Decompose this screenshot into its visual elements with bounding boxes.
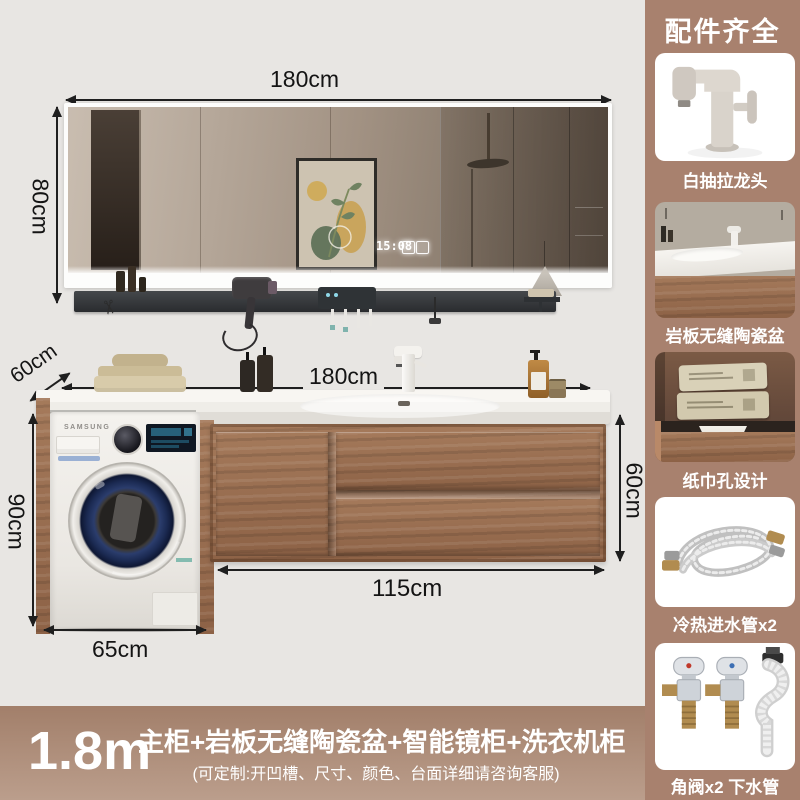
clock-humidity-badge [416, 241, 429, 254]
toothbrush [357, 309, 360, 328]
footer-bar: 1.8m 主柜+岩板无缝陶瓷盆+智能镜柜+洗衣机柜 (可定制:开凹槽、尺寸、颜色… [0, 706, 645, 800]
accessory-card-hoses [655, 497, 795, 607]
display-digits [151, 428, 181, 436]
folded-towel [94, 376, 186, 392]
amenity-bottle [240, 360, 255, 392]
dim-arrow-mirror-height [56, 107, 58, 303]
dim-arrow-cabinet-width [218, 569, 604, 571]
mirror-led-glow [68, 266, 608, 273]
display-icon [184, 428, 192, 436]
clock-temp-badge [402, 241, 415, 254]
razor-handle [434, 297, 436, 319]
accessory-card-tissue [655, 352, 795, 462]
glass-seam [569, 107, 570, 273]
toothbrush [344, 309, 347, 329]
shower-pipe [487, 113, 490, 161]
toothbrush-tip [343, 327, 348, 332]
toothbrush [369, 309, 372, 326]
cabinet-shade [655, 352, 665, 422]
program-knob [112, 424, 143, 455]
pack-mark [743, 369, 755, 381]
dim-arrow-washer-height [32, 414, 34, 626]
dim-label-mirror-height: 80cm [27, 179, 54, 235]
cabinet-drawer-top [336, 432, 600, 490]
shelf-line [575, 235, 603, 236]
dim-label-washer-height: 90cm [3, 494, 30, 550]
service-hatch [152, 592, 198, 626]
faucet-handle [414, 360, 428, 369]
footer-subtitle: (可定制:开凹槽、尺寸、颜色、台面详细请咨询客服) [138, 760, 614, 784]
mini-bottle [139, 277, 146, 292]
dim-arrow-mirror-width [66, 99, 611, 101]
hoses-image [655, 497, 795, 607]
detergent-drawer [56, 436, 100, 454]
wall-hook [665, 208, 667, 219]
shelf-line [575, 207, 603, 208]
dim-arrow-washer-width [44, 629, 206, 631]
footer-title: 主柜+岩板无缝陶瓷盆+智能镜柜+洗衣机柜 [138, 722, 614, 759]
display-row [151, 445, 179, 448]
glass-seam [513, 107, 514, 273]
sidebar-title: 配件齐全 [645, 10, 800, 49]
shower-head [467, 158, 510, 170]
mirror-cabinet: 15:08 [64, 103, 612, 288]
cabinet-drawer-bottom [336, 498, 600, 556]
energy-label [176, 558, 192, 562]
faucet-image [655, 53, 795, 161]
soap-dispenser [528, 360, 549, 398]
accessory-label-tissue: 纸巾孔设计 [655, 467, 795, 492]
cosmetic-jar [549, 389, 566, 398]
indicator-led [334, 293, 338, 297]
hair-dryer-cord [219, 318, 261, 355]
product-scene: 180cm 80cm [0, 0, 645, 706]
accessory-card-faucet [655, 53, 795, 161]
footer-size: 1.8m [28, 724, 151, 778]
copper-edge [655, 421, 661, 462]
indicator-led [326, 293, 330, 297]
integrated-basin [300, 394, 500, 418]
accessories-sidebar: 配件齐全 白抽拉龙头 [645, 0, 800, 800]
ecobubble-badge [58, 456, 100, 461]
product-card: 180cm 80cm [0, 0, 800, 800]
door-highlight [68, 462, 186, 580]
drawer-gap [336, 490, 600, 498]
cabinet-door [216, 432, 328, 556]
pack-text-line [689, 372, 723, 375]
tray-item [528, 289, 554, 297]
washer-brand: SAMSUNG [64, 424, 110, 431]
pack-text-line [689, 377, 733, 381]
display-row [151, 440, 189, 443]
artwork-graphic [299, 161, 374, 267]
accessory-label-faucet: 白抽拉龙头 [655, 167, 795, 192]
accessory-label-hoses: 冷热进水管x2 [655, 611, 795, 636]
mini-bottle [668, 230, 673, 242]
faucet-body [402, 354, 415, 392]
soap-label [531, 372, 546, 390]
valves-drain-image [655, 643, 795, 770]
pendant-cord [544, 241, 545, 267]
dim-label-mirror-width: 180cm [270, 66, 339, 93]
razor-head [429, 318, 441, 324]
scissors-icon: ✂ [95, 298, 120, 318]
amenity-bottle [257, 355, 273, 392]
mini-bottle [128, 266, 136, 292]
accessory-label-basin: 岩板无缝陶瓷盆 [655, 322, 795, 347]
basin-drain [398, 401, 410, 406]
hair-dryer-body [232, 277, 272, 299]
toothbrush-tip [330, 325, 335, 330]
washer-door [68, 462, 186, 580]
vanity-cabinet [210, 424, 606, 562]
dim-label-counter-width: 180cm [303, 363, 384, 390]
accessory-label-valves: 角阀x2 下水管 [655, 773, 795, 798]
pack-mark [743, 398, 755, 410]
dim-label-cabinet-width: 115cm [372, 575, 442, 603]
artwork-reflection [296, 158, 377, 270]
pack-text-line [687, 401, 723, 404]
mirror-glass: 15:08 [68, 107, 608, 273]
accessory-card-valves [655, 643, 795, 770]
hair-dryer-nozzle [268, 281, 277, 294]
accessory-card-basin [655, 202, 795, 318]
doorway-reflection [91, 110, 141, 270]
shower-hose [471, 169, 473, 267]
tray-bracket [539, 302, 542, 312]
cabinet-divider [328, 432, 336, 556]
niche-side-panel [36, 398, 50, 634]
mini-bottle [661, 226, 666, 242]
drawer-front-wood [655, 432, 795, 462]
dim-label-cabinet-height: 60cm [621, 463, 648, 519]
pack-text-line [687, 406, 733, 409]
tissue-pack [679, 362, 768, 391]
rail-tray [524, 297, 560, 302]
dim-label-washer-width: 65cm [92, 636, 148, 663]
soap-spout [530, 350, 540, 353]
washer-display [146, 424, 196, 452]
tissue-pack [677, 391, 769, 420]
mini-bottle [116, 271, 125, 292]
accessory-rail [74, 291, 556, 312]
shower-reflection [440, 107, 608, 273]
photo-cabinet-wood [655, 276, 795, 318]
toothbrush-sterilizer [318, 287, 376, 309]
wall-hook [781, 210, 783, 220]
mirror-door-seam [200, 107, 201, 273]
washing-machine: SAMSUNG [50, 412, 200, 630]
